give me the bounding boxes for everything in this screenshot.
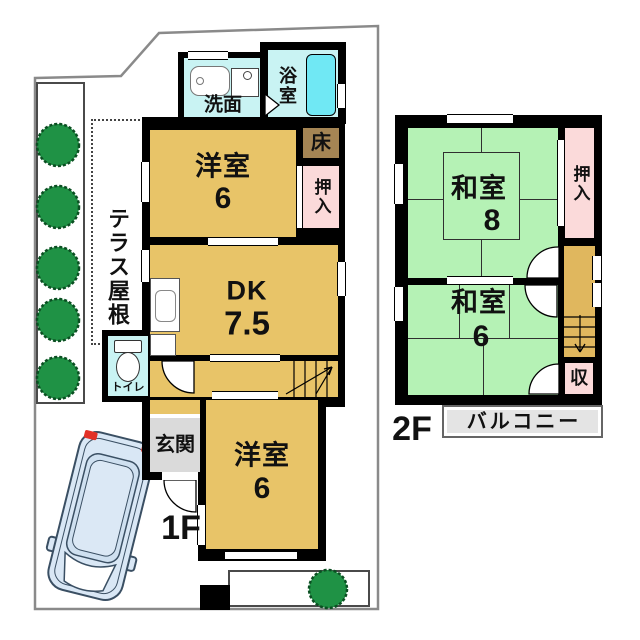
room-toilet-label: トイレ (112, 383, 145, 394)
entrance-opening (162, 472, 198, 480)
tatami-line (481, 240, 482, 278)
faucet-icon (196, 77, 204, 85)
toilet-icon (116, 352, 140, 382)
room-japanese-8-label: 和室 (451, 176, 507, 203)
window (394, 287, 404, 321)
tatami-line (520, 199, 558, 200)
gate-block (200, 585, 230, 610)
floor2-label: 2F (392, 412, 432, 446)
room-closet-1f-label: 押入 (313, 178, 330, 216)
room-storage-label: 収 (570, 369, 588, 387)
door-swing-icon (526, 246, 560, 279)
window (447, 114, 513, 124)
room-entrance-label: 玄関 (155, 435, 195, 455)
tatami-line (408, 199, 443, 200)
tree-icon (37, 124, 79, 166)
balcony-label: バルコニー (467, 412, 582, 432)
folding-door-icon (264, 93, 282, 117)
terrace-roof-label: テラス屋根 (106, 207, 128, 327)
room-japanese-6-label: 和室 (451, 290, 507, 317)
tatami-line (481, 128, 482, 152)
room-dk-size: 7.5 (224, 307, 270, 340)
window (141, 162, 150, 202)
tatami-line (509, 285, 510, 338)
sliding-door (210, 354, 280, 362)
window (337, 84, 346, 108)
tree-icon (37, 186, 79, 228)
room-tokonoma-label: 床 (311, 133, 331, 153)
window (592, 283, 602, 307)
tree-icon (309, 570, 347, 608)
refrigerator-icon (150, 334, 176, 356)
window (225, 551, 297, 560)
window (592, 256, 602, 280)
window (212, 391, 278, 400)
hall-entrance (150, 400, 200, 414)
sliding-door (557, 140, 565, 226)
window (337, 262, 346, 296)
tree-icon (37, 357, 79, 399)
window (394, 164, 404, 204)
stairs-up-icon (283, 361, 337, 397)
tree-icon (37, 299, 79, 341)
room-western-bottom-label: 洋室 (234, 443, 290, 470)
kitchen-sink-icon (155, 290, 176, 322)
sliding-door (296, 166, 303, 228)
room-western-bottom-size: 6 (254, 474, 271, 504)
room-japanese-8-size: 8 (484, 206, 501, 236)
floor1-label: 1F (161, 511, 201, 545)
door-swing-icon (160, 360, 195, 395)
room-western-top-size: 6 (215, 184, 232, 214)
planter-bottom (229, 571, 369, 606)
room-washroom-label: 洗面 (204, 96, 242, 115)
floor-plan: テラス屋根 洗面 浴室 洋室 6 床 押入 DK 7.5 (0, 0, 640, 640)
stairs-down-icon (564, 313, 595, 357)
room-dk-label: DK (227, 278, 268, 305)
window (141, 250, 150, 282)
room-japanese-6-size: 6 (473, 322, 490, 352)
window (188, 51, 228, 60)
washer-drain-icon (243, 71, 252, 80)
door-swing-icon (528, 362, 560, 395)
room-closet-2f-label: 押入 (572, 165, 589, 203)
door-swing-icon (524, 284, 558, 318)
tree-icon (37, 247, 79, 289)
sliding-door (447, 276, 513, 285)
room-western-top-label: 洋室 (195, 154, 251, 181)
sliding-door (208, 237, 278, 246)
bathtub-icon (306, 54, 336, 116)
